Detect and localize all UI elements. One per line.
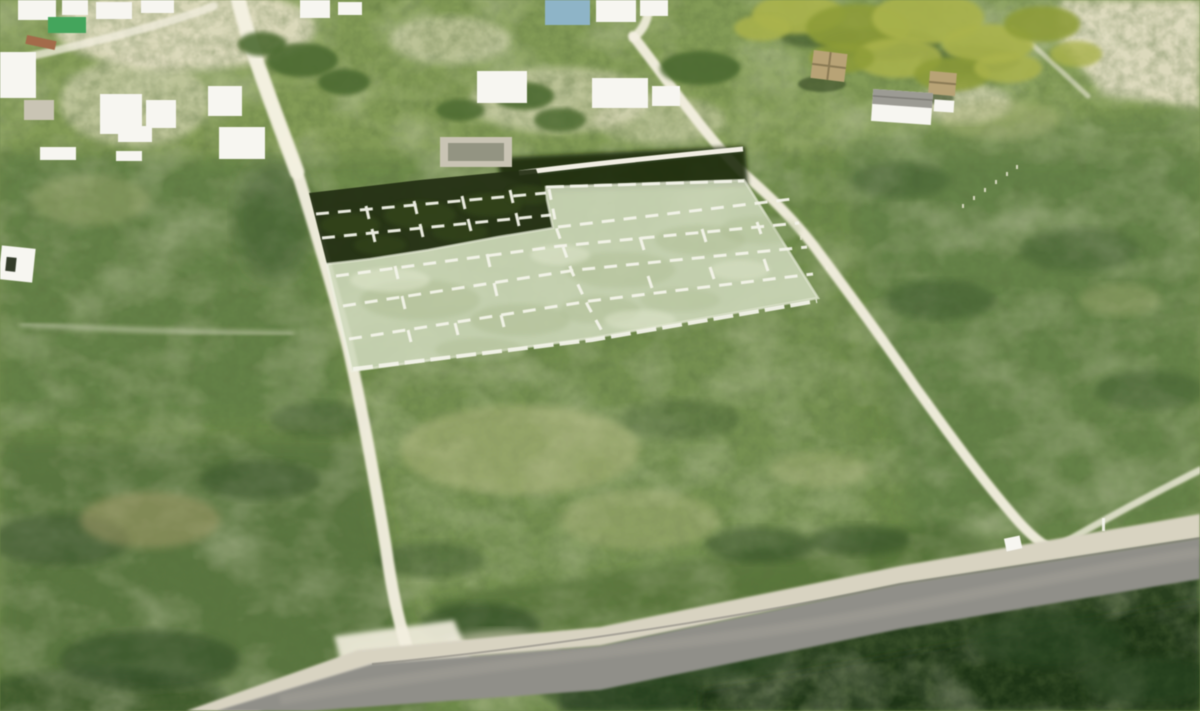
gray-roof-house bbox=[871, 89, 933, 125]
warehouse bbox=[0, 245, 36, 282]
gray-shack bbox=[24, 100, 54, 120]
palapa-hut bbox=[810, 50, 847, 82]
blue-building bbox=[545, 0, 590, 25]
palapa-hut-2 bbox=[928, 71, 957, 96]
aerial-photo-canvas bbox=[0, 0, 1200, 711]
green-structure bbox=[48, 17, 86, 33]
aerial-photo bbox=[0, 0, 1200, 711]
